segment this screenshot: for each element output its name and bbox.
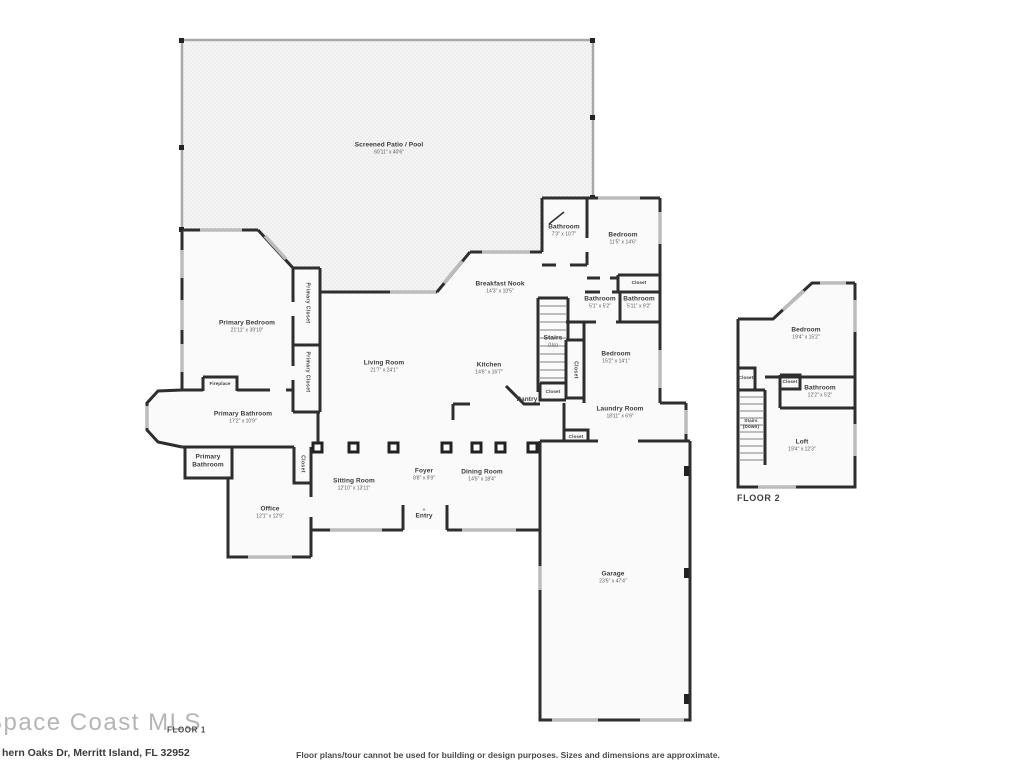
room-name: Living Room	[364, 360, 404, 368]
room-dims: 17'2" x 10'9"	[214, 419, 272, 426]
room-dims: (Up)	[544, 343, 563, 350]
room-name-line2: (Down)	[743, 424, 759, 430]
room-label-primary-bedroom: Primary Bedroom 21'11" x 39'10"	[219, 320, 275, 335]
disclaimer-text: Floor plans/tour cannot be used for buil…	[296, 750, 720, 760]
room-label-bedroom-guest: Bedroom 11'5" x 14'6"	[608, 232, 637, 247]
room-dims: 21'7" x 24'1"	[364, 368, 404, 375]
room-name: Closet	[569, 434, 584, 440]
room-dims: 8'8" x 9'9"	[413, 476, 435, 483]
room-dims: 5'1" x 5'2"	[584, 304, 616, 311]
room-label-primary-closet-1: Primary Closet	[304, 283, 311, 324]
room-label-f2-stairs-down: Stairs (Down)	[743, 418, 759, 430]
room-name: Loft	[788, 439, 815, 447]
room-name: Screened Patio / Pool	[355, 142, 424, 150]
room-name: Primary Closet	[304, 283, 311, 324]
room-label-closet-laundry: Closet	[569, 434, 584, 440]
room-name: Sitting Room	[333, 478, 375, 486]
room-name: Bedroom	[601, 351, 630, 359]
room-dims: 23'5" x 47'4"	[599, 579, 626, 586]
room-name: Dining Room	[461, 469, 503, 477]
room-dims: 14'6" x 16'7"	[475, 370, 502, 377]
room-name-line2: Bathroom	[192, 462, 224, 470]
room-label-primary-bathroom: Primary Bathroom 17'2" x 10'9"	[214, 411, 272, 426]
room-name: Primary Bathroom	[214, 411, 272, 419]
room-name: Foyer	[413, 468, 435, 476]
room-label-f2-closet-left: Closet	[739, 375, 754, 381]
room-dims: 19'4" x 15'2"	[791, 335, 820, 342]
room-name: Bathroom	[804, 385, 836, 393]
room-label-closet-stairs: Closet	[572, 361, 579, 379]
room-label-stairs-up: Stairs (Up)	[544, 335, 563, 350]
room-name: Pantry	[517, 396, 538, 404]
floor-2-label: FLOOR 2	[737, 493, 780, 503]
room-label-dining-room: Dining Room 14'5" x 18'4"	[461, 469, 503, 484]
room-dims: 14'5" x 18'4"	[461, 477, 503, 484]
room-name: Bedroom	[608, 232, 637, 240]
room-label-screened-patio-pool: Screened Patio / Pool 60'11" x 40'6"	[355, 142, 424, 157]
room-name: Closet	[783, 379, 798, 385]
room-name: Stairs	[544, 335, 563, 343]
room-name: Office	[256, 506, 283, 514]
room-name: Closet	[572, 361, 579, 379]
room-label-office: Office 12'1" x 12'9"	[256, 506, 283, 521]
room-label-bathroom-guest: Bathroom 7'3" x 10'7"	[548, 224, 580, 239]
room-label-breakfast-nook: Breakfast Nook 14'3" x 10'5"	[475, 281, 524, 296]
room-label-sitting-room: Sitting Room 12'10" x 13'11"	[333, 478, 375, 493]
room-dims: 12'2" x 5'2"	[804, 393, 836, 400]
room-label-laundry-room: Laundry Room 18'11" x 6'9"	[596, 406, 643, 421]
room-label-closet-hall: Closet	[299, 455, 306, 473]
room-dims: 60'11" x 40'6"	[355, 150, 424, 157]
room-dims: 19'4" x 12'3"	[788, 447, 815, 454]
floor-plan-drawing	[0, 0, 1024, 768]
room-name: Closet	[739, 375, 754, 381]
room-dims: 7'3" x 10'7"	[548, 232, 580, 239]
room-dims: 5'11" x 9'2"	[623, 304, 655, 311]
property-address: hern Oaks Dr, Merritt Island, FL 32952	[2, 747, 190, 759]
room-dims: 15'2" x 14'1"	[601, 359, 630, 366]
room-label-primary-bathroom-2: Primary Bathroom	[192, 454, 224, 471]
room-dims: 11'5" x 14'6"	[608, 240, 637, 247]
room-label-f2-closet-mid: Closet	[783, 379, 798, 385]
room-name: Bathroom	[623, 296, 655, 304]
room-name: Bathroom	[548, 224, 580, 232]
room-label-kitchen: Kitchen 14'6" x 16'7"	[475, 362, 502, 377]
room-label-entry: ▲ Entry	[415, 507, 432, 520]
room-label-pantry: Pantry	[517, 396, 538, 404]
room-dims: 12'1" x 12'9"	[256, 514, 283, 521]
room-name: Closet	[299, 455, 306, 473]
room-label-f2-bathroom: Bathroom 12'2" x 5'2"	[804, 385, 836, 400]
room-label-closet-guest: Closet	[632, 280, 647, 286]
room-name: Garage	[599, 571, 626, 579]
room-name: Bedroom	[791, 327, 820, 335]
room-name: Primary Closet	[304, 352, 311, 393]
room-name: Closet	[632, 280, 647, 286]
room-dims: 12'10" x 13'11"	[333, 486, 375, 493]
room-name: Primary	[192, 454, 224, 462]
room-dims: 21'11" x 39'10"	[219, 328, 275, 335]
room-label-f2-loft: Loft 19'4" x 12'3"	[788, 439, 815, 454]
room-fill-layer	[147, 198, 855, 720]
floor-plan-page: Screened Patio / Pool 60'11" x 40'6" Bat…	[0, 0, 1024, 768]
room-name: Breakfast Nook	[475, 281, 524, 289]
room-label-f2-bedroom: Bedroom 19'4" x 15'2"	[791, 327, 820, 342]
room-label-bathroom-small: Bathroom 5'1" x 5'2"	[584, 296, 616, 311]
room-name: Primary Bedroom	[219, 320, 275, 328]
room-label-bedroom-mid: Bedroom 15'2" x 14'1"	[601, 351, 630, 366]
room-dims: 14'3" x 10'5"	[475, 289, 524, 296]
room-label-living-room: Living Room 21'7" x 24'1"	[364, 360, 404, 375]
room-name: Fireplace	[209, 381, 230, 387]
room-label-fireplace: Fireplace	[209, 381, 230, 387]
room-label-closet-understairs: Closet	[546, 389, 561, 395]
room-name: Closet	[546, 389, 561, 395]
room-label-bathroom-hall: Bathroom 5'11" x 9'2"	[623, 296, 655, 311]
floor-1-label: FLOOR 1	[167, 726, 206, 735]
room-label-garage: Garage 23'5" x 47'4"	[599, 571, 626, 586]
room-name: Kitchen	[475, 362, 502, 370]
room-label-foyer: Foyer 8'8" x 9'9"	[413, 468, 435, 483]
room-name: Bathroom	[584, 296, 616, 304]
room-name: Entry	[415, 512, 432, 520]
room-dims: 18'11" x 6'9"	[596, 414, 643, 421]
room-label-primary-closet-2: Primary Closet	[304, 352, 311, 393]
room-name: Laundry Room	[596, 406, 643, 414]
